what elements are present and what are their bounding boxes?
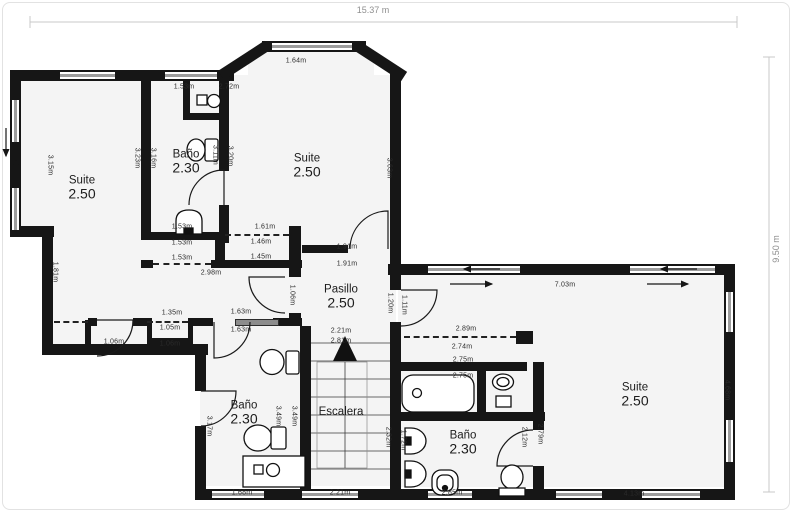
window bbox=[642, 489, 700, 500]
window bbox=[272, 41, 352, 52]
wall bbox=[533, 466, 544, 490]
wall bbox=[141, 260, 153, 268]
wall bbox=[401, 412, 545, 421]
window bbox=[428, 489, 472, 500]
opening-dashed bbox=[225, 234, 289, 236]
wall bbox=[141, 81, 151, 240]
window bbox=[10, 100, 21, 142]
opening-dashed bbox=[147, 321, 188, 323]
window bbox=[60, 70, 115, 81]
sliding-door bbox=[235, 319, 279, 326]
window bbox=[302, 489, 358, 500]
wall bbox=[211, 260, 225, 268]
window bbox=[212, 489, 264, 500]
window bbox=[10, 188, 21, 230]
window bbox=[724, 292, 735, 332]
wall bbox=[183, 113, 228, 120]
wall bbox=[195, 426, 206, 492]
wall bbox=[302, 245, 348, 253]
wall bbox=[516, 331, 533, 344]
floorplan-canvas: 15.37 m 9.50 m Suite2.50Baño2.30Suite2.5… bbox=[0, 0, 792, 512]
window bbox=[428, 264, 520, 275]
opening-dashed bbox=[54, 321, 88, 323]
wall bbox=[289, 226, 301, 277]
wall bbox=[477, 371, 486, 414]
window bbox=[630, 264, 715, 275]
opening-dashed bbox=[153, 263, 211, 265]
floor-fill bbox=[18, 75, 395, 227]
wall bbox=[401, 362, 527, 371]
wall bbox=[390, 70, 401, 276]
wall bbox=[42, 226, 53, 355]
floor-fill bbox=[248, 50, 374, 78]
wall bbox=[533, 362, 544, 430]
wall bbox=[42, 344, 208, 355]
wall bbox=[85, 320, 91, 344]
window bbox=[165, 70, 217, 81]
window bbox=[724, 420, 735, 462]
floor-fill bbox=[398, 272, 730, 487]
wall bbox=[390, 275, 401, 290]
wall bbox=[133, 318, 147, 326]
wall bbox=[193, 318, 213, 326]
wall bbox=[219, 81, 229, 171]
wall bbox=[195, 350, 206, 391]
window bbox=[556, 489, 602, 500]
wall bbox=[147, 338, 193, 344]
wall bbox=[300, 326, 311, 500]
opening-dashed bbox=[404, 336, 516, 338]
wall bbox=[390, 322, 401, 500]
wall bbox=[141, 232, 224, 240]
